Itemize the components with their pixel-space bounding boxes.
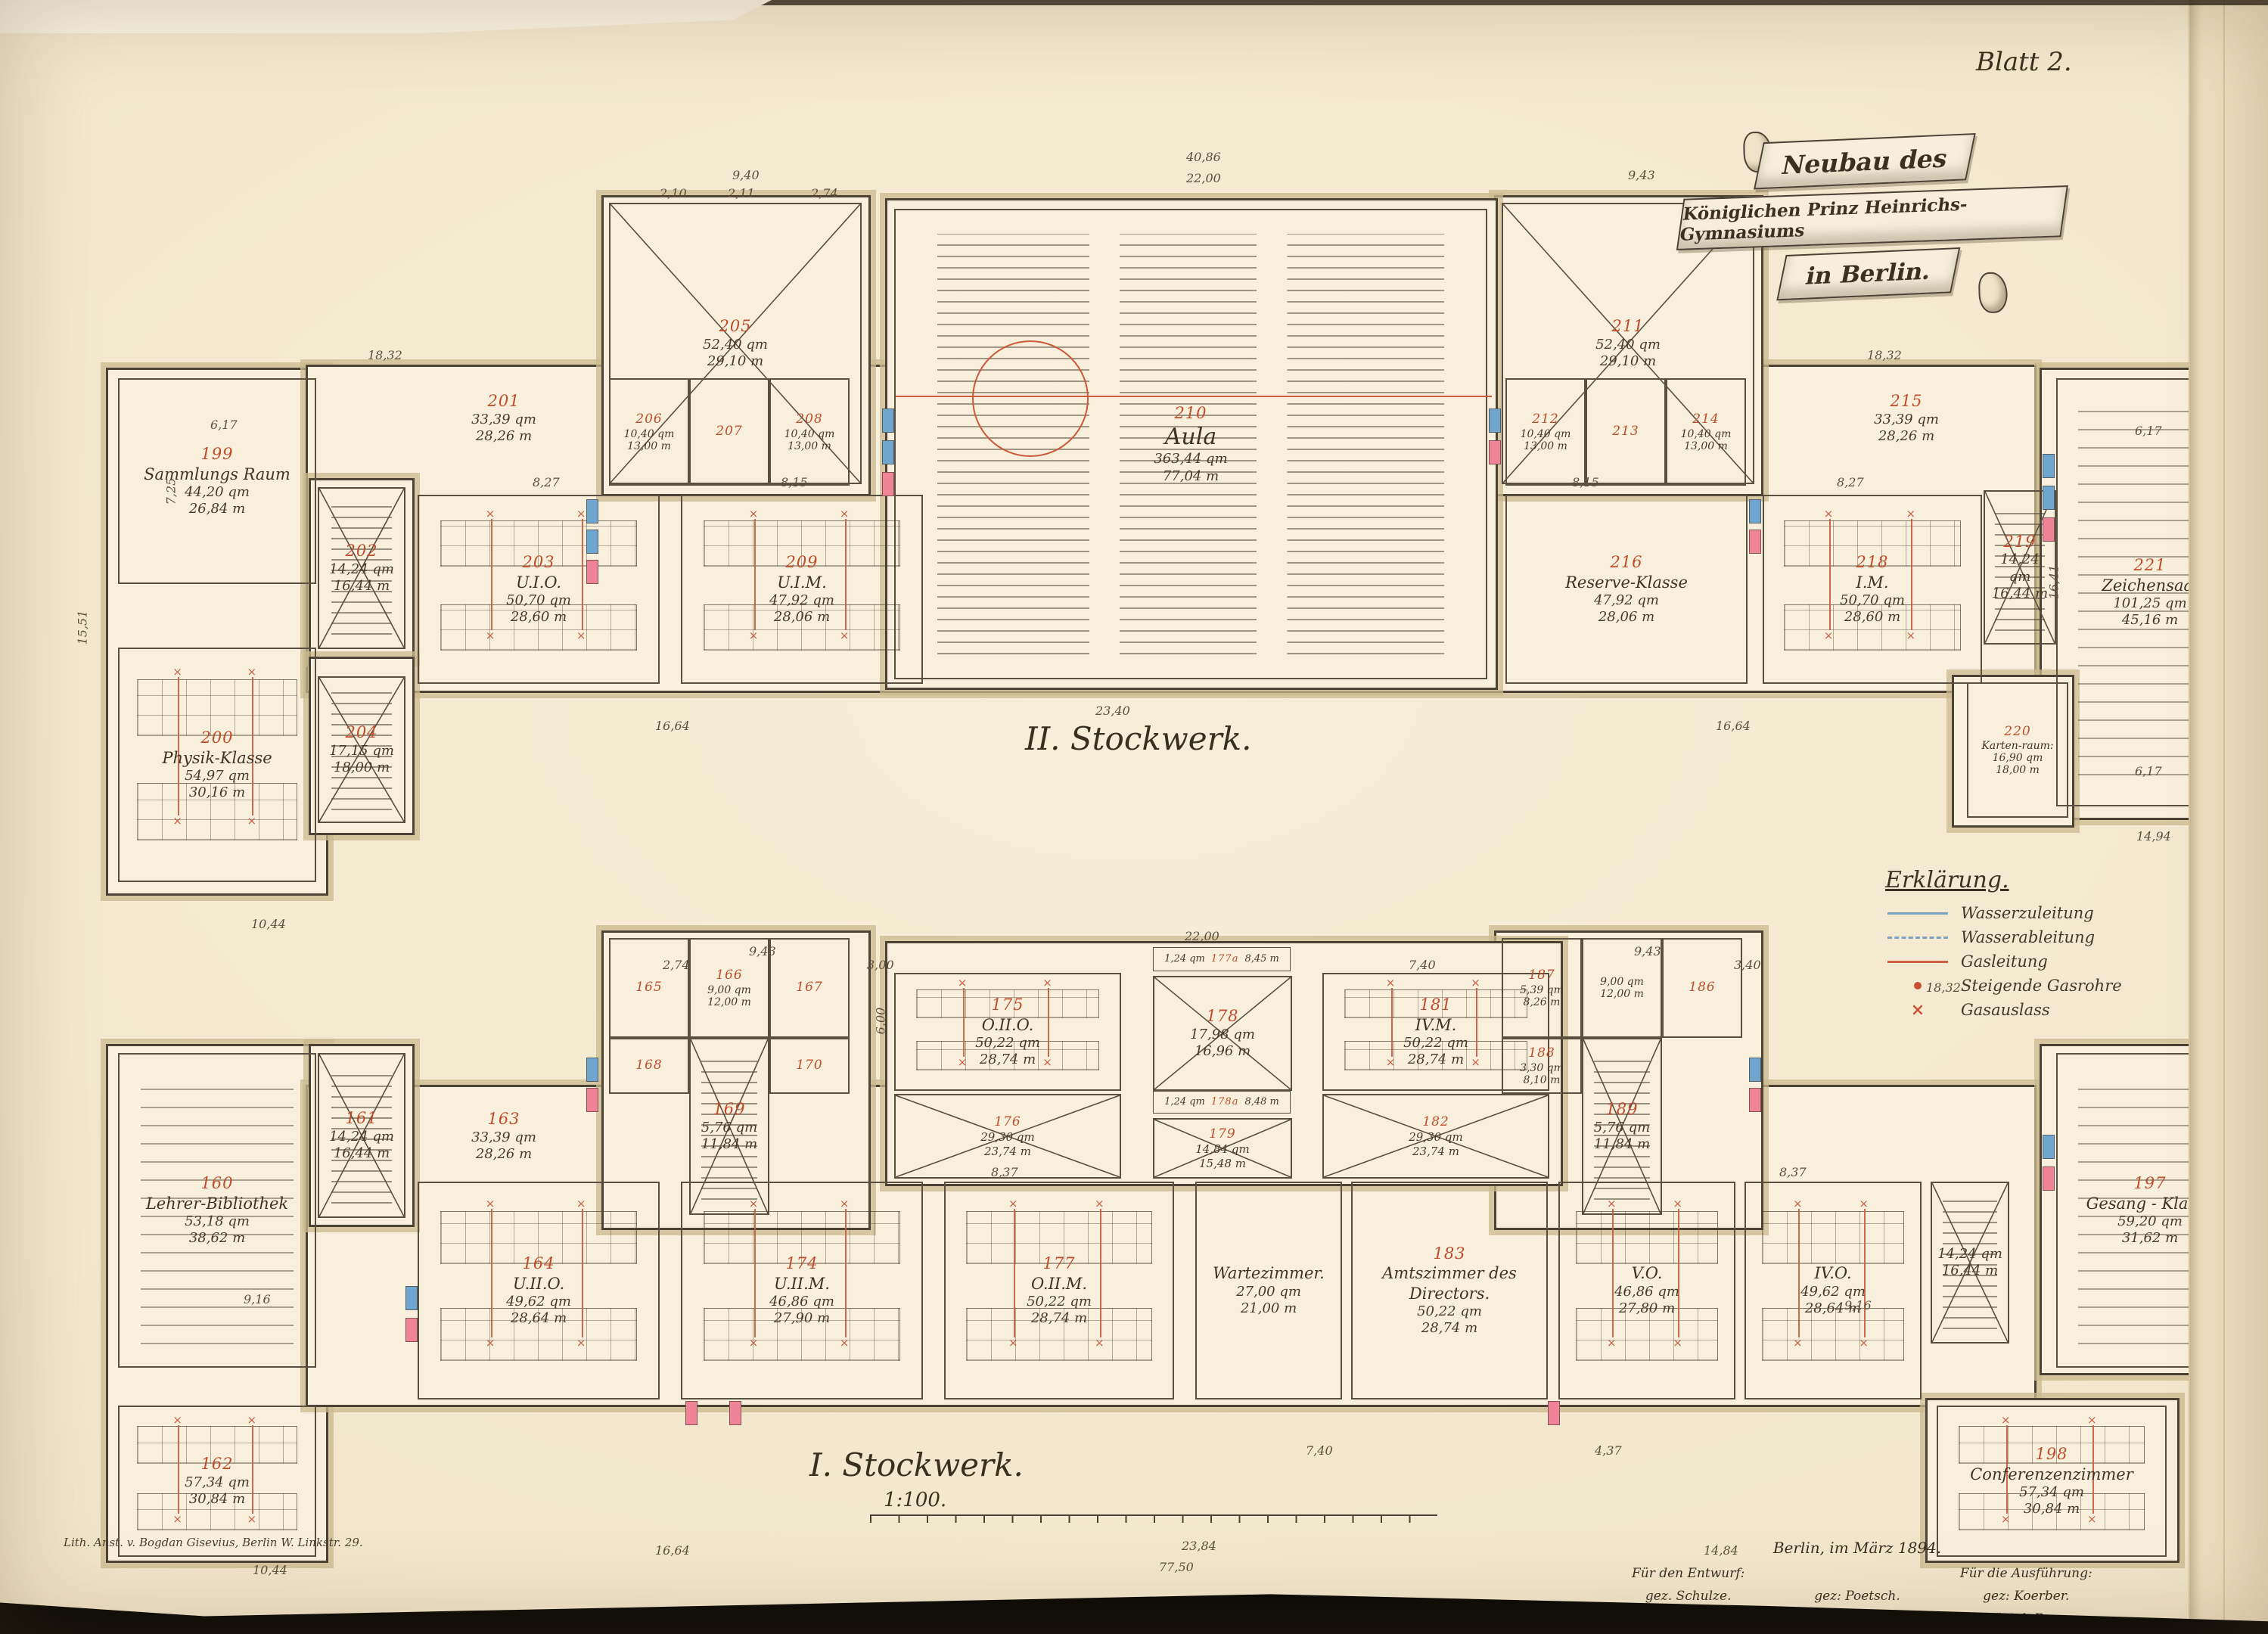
room-number: 188 xyxy=(1520,1045,1564,1061)
credit-heading xyxy=(1776,1563,1937,1586)
room: 14,24 qm16,44 m xyxy=(1931,1182,2009,1344)
room: 165 xyxy=(609,938,689,1038)
room-label: 181IV.M.50,22 qm28,74 m xyxy=(1400,993,1471,1070)
door-mark xyxy=(2043,1166,2055,1191)
room-label: 17817,98 qm16,96 m xyxy=(1187,1005,1258,1061)
legend-item-gas-outlet: ×Gasauslass xyxy=(1885,998,2211,1022)
credit-heading: Für den Entwurf: xyxy=(1608,1563,1769,1586)
room-perimeter: 28,74 m xyxy=(1403,1052,1468,1069)
room-number: 168 xyxy=(635,1058,662,1073)
room: 16257,34 qm30,84 m xyxy=(118,1406,316,1557)
room-perimeter: 12,00 m xyxy=(707,996,751,1008)
room-name: U.II.O. xyxy=(506,1274,571,1294)
room-number: 187 xyxy=(1520,968,1564,983)
room-area: 46,86 qm xyxy=(1614,1284,1679,1301)
water-supply-line-symbol xyxy=(1885,912,1950,915)
window-mark xyxy=(2043,454,2055,478)
room-number: 170 xyxy=(796,1058,822,1073)
room-perimeter: 23,74 m xyxy=(1409,1145,1463,1159)
room-label: 174U.II.M.46,86 qm27,90 m xyxy=(766,1252,837,1329)
room-label: 14,24 qm16,44 m xyxy=(1934,1244,2005,1281)
room-label: 186 xyxy=(1685,978,1718,997)
room-area: 50,22 qm xyxy=(1403,1035,1468,1052)
room-number: 198 xyxy=(1970,1444,2133,1464)
room-perimeter: 11,84 m xyxy=(1594,1136,1650,1154)
window-mark xyxy=(1489,408,1501,433)
room-label: 1,24 qm177a8,45 m xyxy=(1161,952,1282,967)
room-number: 186 xyxy=(1689,980,1715,996)
room-name: Wartezimmer. xyxy=(1213,1263,1325,1283)
room: 18229,30 qm23,74 m xyxy=(1322,1094,1549,1179)
room-area: 50,22 qm xyxy=(1356,1303,1543,1321)
room-label: 167 xyxy=(793,978,825,997)
room-label: 18229,30 qm23,74 m xyxy=(1406,1113,1466,1160)
room-label: 183Amtszimmer des Directors.50,22 qm28,7… xyxy=(1353,1242,1546,1339)
room-perimeter: 28,74 m xyxy=(1356,1320,1543,1337)
dimension-label: 9,16 xyxy=(1844,1298,1872,1312)
room: 183Amtszimmer des Directors.50,22 qm28,7… xyxy=(1351,1182,1548,1399)
room-label: 198Conferenzenzimmer57,34 qm30,84 m xyxy=(1967,1443,2136,1520)
room-name: V.O. xyxy=(1614,1263,1679,1283)
water-drain-line-symbol xyxy=(1885,937,1950,939)
room-label: 177O.II.M.50,22 qm28,74 m xyxy=(1024,1252,1095,1329)
room-area: 5,76 qm xyxy=(701,1120,757,1137)
window-mark xyxy=(2043,486,2055,510)
room-area: 14,84 qm xyxy=(1195,1142,1250,1157)
room: 177O.II.M.50,22 qm28,74 m xyxy=(944,1182,1174,1399)
gas-drop-line xyxy=(1048,988,1049,1057)
gas-drop-line xyxy=(1476,988,1477,1057)
room-perimeter: 28,26 m xyxy=(471,1146,536,1163)
door-mark xyxy=(586,560,598,584)
room-number: 161 xyxy=(329,1108,394,1128)
room-perimeter: 28,74 m xyxy=(1027,1310,1092,1328)
door-mark xyxy=(586,1088,598,1112)
room-label: V.O.46,86 qm27,80 m xyxy=(1611,1262,1682,1319)
room-number: 175 xyxy=(975,995,1040,1014)
room-area: 27,00 qm xyxy=(1213,1284,1325,1301)
floor-label-second: II. Stockwerk. xyxy=(1025,720,1251,757)
room-label: 17629,30 qm23,74 m xyxy=(977,1113,1038,1160)
dimension-label: 8,37 xyxy=(991,1165,1018,1179)
room-perimeter: 23,74 m xyxy=(980,1145,1035,1159)
room-area: 53,18 qm xyxy=(146,1213,288,1231)
room-perimeter: 16,44 m xyxy=(1937,1263,2002,1280)
legend-item-rising-gas-pipe: Steigende Gasrohre xyxy=(1885,974,2211,998)
room-label: 175O.II.O.50,22 qm28,74 m xyxy=(972,993,1043,1070)
room-number: 165 xyxy=(635,980,662,996)
room-label: 16333,39 qm28,26 m xyxy=(468,1107,539,1164)
room-area: 14,24 qm xyxy=(1937,1246,2002,1263)
window-mark xyxy=(2043,1135,2055,1159)
room-perimeter: 11,84 m xyxy=(701,1136,757,1154)
floor-label-first: I. Stockwerk. xyxy=(809,1446,1024,1483)
room-name: IV.O. xyxy=(1800,1263,1866,1283)
dimension-label: 16,64 xyxy=(655,1543,690,1558)
page-crease xyxy=(2223,0,2225,1634)
credit-heading: Für die Ausführung: xyxy=(1946,1563,2107,1586)
room-label: Wartezimmer.27,00 qm21,00 m xyxy=(1210,1262,1328,1319)
gas-drop-line xyxy=(1391,988,1393,1057)
room-perimeter: 28,74 m xyxy=(975,1052,1040,1069)
gas-drop-line xyxy=(1014,1209,1015,1337)
room: 174U.II.M.46,86 qm27,90 m xyxy=(681,1182,923,1399)
legend-title: Erklärung. xyxy=(1885,867,2211,893)
legend-items: WasserzuleitungWasserableitungGasleitung… xyxy=(1885,901,2211,1022)
door-mark xyxy=(729,1401,741,1425)
room-label: 1669,00 qm12,00 m xyxy=(704,966,754,1009)
dimension-label: 23,84 xyxy=(1182,1539,1216,1553)
room-area: 5,76 qm xyxy=(1594,1120,1650,1137)
gas-drop-line xyxy=(963,988,965,1057)
dimension-label: 2,74 xyxy=(663,958,690,972)
gas-drop-line xyxy=(178,1425,179,1514)
room-area: 33,39 qm xyxy=(471,1129,536,1147)
room-label: 9,00 qm12,00 m xyxy=(1597,974,1647,1002)
room-label: 164U.II.O.49,62 qm28,64 m xyxy=(503,1252,574,1329)
room-label: 17914,84 qm15,48 m xyxy=(1192,1125,1253,1173)
room-number: 178 xyxy=(1190,1006,1255,1026)
room-number: 181 xyxy=(1403,995,1468,1014)
room-number: 167 xyxy=(796,980,822,996)
room-label: 1695,76 qm11,84 m xyxy=(698,1098,760,1154)
dimension-label: 77,50 xyxy=(1159,1560,1194,1574)
room-perimeter: 8,10 m xyxy=(1520,1074,1564,1086)
dimension-label: 6,00 xyxy=(873,1008,887,1035)
room-name: U.II.M. xyxy=(769,1274,834,1294)
date-line: Berlin, im März 1894. xyxy=(1608,1539,2107,1557)
title-banner: Neubau des Königlichen Prinz Heinrichs-G… xyxy=(1673,122,2071,322)
legend-item-water-supply-line: Wasserzuleitung xyxy=(1885,901,2211,925)
rising-gas-pipe-symbol xyxy=(1885,982,1950,989)
room: 198Conferenzenzimmer57,34 qm30,84 m xyxy=(1937,1406,2167,1557)
room-area: 50,22 qm xyxy=(1027,1294,1092,1311)
window-mark xyxy=(586,530,598,554)
room-number: 189 xyxy=(1594,1099,1650,1119)
credit-signature: gez: Koerber. xyxy=(1946,1586,2107,1608)
room: 16333,39 qm28,26 m xyxy=(412,1094,596,1179)
dimension-label: 3,40 xyxy=(1734,958,1761,972)
room: 16114,24 qm16,44 m xyxy=(318,1053,405,1218)
window-mark xyxy=(1749,1058,1761,1082)
gas-drop-line xyxy=(754,1209,756,1337)
legend-label: Wasserzuleitung xyxy=(1961,904,2094,922)
room-name: Conferenzenzimmer xyxy=(1970,1465,2133,1484)
legend-item-water-drain-line: Wasserableitung xyxy=(1885,925,2211,949)
room-number: 183 xyxy=(1356,1244,1543,1263)
legend: Erklärung. WasserzuleitungWasserableitun… xyxy=(1885,867,2211,1022)
room: 164U.II.O.49,62 qm28,64 m xyxy=(418,1182,660,1399)
dimension-label: 8,37 xyxy=(1779,1165,1807,1179)
room-perimeter: 38,62 m xyxy=(146,1230,288,1247)
room-number: 177 xyxy=(1027,1253,1092,1273)
window-mark xyxy=(1749,499,1761,523)
legend-label: Steigende Gasrohre xyxy=(1961,977,2122,995)
window-mark xyxy=(586,1058,598,1082)
title-line-1: Neubau des xyxy=(1754,133,1976,190)
gas-drop-line xyxy=(491,1209,492,1337)
room: Wartezimmer.27,00 qm21,00 m xyxy=(1195,1182,1342,1399)
room-area: 49,62 qm xyxy=(506,1294,571,1311)
room-area: 29,30 qm xyxy=(980,1130,1035,1145)
gas-outlet-symbol: × xyxy=(1885,1002,1950,1018)
room-number: 166 xyxy=(707,968,751,983)
room: 168 xyxy=(609,1038,689,1094)
room-area: 1,24 qm xyxy=(1164,953,1205,965)
room-label: 168 xyxy=(632,1056,665,1075)
room-perimeter: 8,48 m xyxy=(1244,1096,1278,1108)
room-perimeter: 16,96 m xyxy=(1190,1043,1255,1061)
photo-backdrop-top xyxy=(590,0,2268,5)
room-number: 162 xyxy=(185,1454,250,1474)
legend-label: Wasserableitung xyxy=(1961,928,2095,946)
door-mark xyxy=(2043,517,2055,542)
room-number: 178a xyxy=(1211,1096,1239,1108)
room-number: 174 xyxy=(769,1253,834,1273)
room-label: 160Lehrer-Bibliothek53,18 qm38,62 m xyxy=(143,1172,291,1249)
room-name: Lehrer-Bibliothek xyxy=(146,1194,288,1213)
room-number: 160 xyxy=(146,1173,288,1193)
door-mark xyxy=(685,1401,697,1425)
room-label: 1895,76 qm11,84 m xyxy=(1591,1098,1653,1154)
room: 1,24 qm177a8,45 m xyxy=(1153,947,1291,971)
room-area: 50,22 qm xyxy=(975,1035,1040,1052)
room-number: 177a xyxy=(1211,953,1239,965)
room: 160Lehrer-Bibliothek53,18 qm38,62 m xyxy=(118,1053,316,1368)
room-number: 163 xyxy=(471,1109,536,1129)
room: 181IV.M.50,22 qm28,74 m xyxy=(1322,973,1549,1091)
room: 1895,76 qm11,84 m xyxy=(1582,1038,1662,1215)
sheet-number: Blatt 2. xyxy=(1976,47,2072,77)
room-name: Amtszimmer des Directors. xyxy=(1356,1263,1543,1303)
room-label: 165 xyxy=(632,978,665,997)
dimension-label: 9,16 xyxy=(244,1292,271,1306)
room: 170 xyxy=(769,1038,850,1094)
room-name: O.II.O. xyxy=(975,1015,1040,1035)
room: 186 xyxy=(1662,938,1742,1038)
room-perimeter: 27,90 m xyxy=(769,1310,834,1328)
window-mark xyxy=(882,408,894,433)
door-mark xyxy=(1749,530,1761,554)
legend-label: Gasauslass xyxy=(1961,1001,2050,1019)
room-name: IV.M. xyxy=(1403,1015,1468,1035)
window-mark xyxy=(882,440,894,464)
door-mark xyxy=(1548,1401,1560,1425)
dimension-label: 3,00 xyxy=(867,958,894,972)
room-number: 164 xyxy=(506,1253,571,1273)
gas-line-symbol xyxy=(1885,961,1950,963)
room-perimeter: 27,80 m xyxy=(1614,1300,1679,1318)
room-area: 57,34 qm xyxy=(1970,1484,2133,1502)
title-line-2: Königlichen Prinz Heinrichs-Gymnasiums xyxy=(1676,185,2068,250)
door-mark xyxy=(1749,1088,1761,1112)
lithographer-credit: Lith. Anst. v. Bogdan Gisevius, Berlin W… xyxy=(64,1536,363,1549)
room-area: 17,98 qm xyxy=(1190,1027,1255,1044)
room-perimeter: 8,45 m xyxy=(1244,953,1278,965)
room-label: 16114,24 qm16,44 m xyxy=(326,1107,397,1163)
scale-label: 1:100. xyxy=(884,1489,946,1511)
room-area: 9,00 qm xyxy=(707,984,751,996)
dimension-label: 7,40 xyxy=(1409,958,1436,972)
dimension-label: 22,00 xyxy=(1185,929,1219,943)
legend-item-gas-line: Gasleitung xyxy=(1885,949,2211,974)
room-perimeter: 15,48 m xyxy=(1195,1157,1250,1171)
room-number: 179 xyxy=(1195,1126,1250,1142)
gas-drop-line xyxy=(845,1209,847,1337)
door-mark xyxy=(882,472,894,496)
room-area: 5,39 qm xyxy=(1520,984,1564,996)
room-area: 46,86 qm xyxy=(769,1294,834,1311)
room-area: 3,30 qm xyxy=(1520,1062,1564,1074)
room-perimeter: 30,84 m xyxy=(1970,1501,2133,1518)
room: IV.O.49,62 qm28,64 m xyxy=(1744,1182,1922,1399)
ribbon-scroll-icon xyxy=(1978,272,2008,313)
dimension-label: 4,37 xyxy=(1595,1443,1622,1458)
album-page-edge xyxy=(2189,0,2268,1634)
room-number: 169 xyxy=(701,1099,757,1119)
legend-label: Gasleitung xyxy=(1961,952,2048,971)
room-perimeter: 30,84 m xyxy=(185,1491,250,1508)
title-line-3: in Berlin. xyxy=(1776,247,1960,300)
room-label: 1883,30 qm8,10 m xyxy=(1517,1044,1567,1087)
room: 175O.II.O.50,22 qm28,74 m xyxy=(894,973,1121,1091)
dimension-label: 7,40 xyxy=(1306,1443,1333,1458)
gas-drop-line xyxy=(582,1209,583,1337)
window-mark xyxy=(586,499,598,523)
door-mark xyxy=(1489,440,1501,464)
credit-signature: gez: Poetsch. xyxy=(1776,1586,1937,1608)
room: 17817,98 qm16,96 m xyxy=(1153,976,1292,1091)
room-perimeter: 12,00 m xyxy=(1600,988,1644,1000)
room-label: 1875,39 qm8,26 m xyxy=(1517,966,1567,1009)
room-area: 1,24 qm xyxy=(1164,1096,1205,1108)
window-mark xyxy=(405,1286,418,1310)
photographed-plan-sheet: Blatt 2. Neubau des Königlichen Prinz He… xyxy=(0,0,2268,1634)
room: 167 xyxy=(769,938,850,1038)
dimension-label: 9,43 xyxy=(749,944,776,958)
room-number: 176 xyxy=(980,1114,1035,1130)
dimension-label: 9,43 xyxy=(1634,944,1661,958)
room-perimeter: 8,26 m xyxy=(1520,996,1564,1008)
room-area: 14,24 qm xyxy=(329,1129,394,1146)
room-perimeter: 21,00 m xyxy=(1213,1300,1325,1318)
room: V.O.46,86 qm27,80 m xyxy=(1558,1182,1735,1399)
room-area: 9,00 qm xyxy=(1600,976,1644,988)
room-label: 170 xyxy=(793,1056,825,1075)
room-number: 182 xyxy=(1409,1114,1463,1130)
room-label: 16257,34 qm30,84 m xyxy=(182,1452,253,1509)
room-perimeter: 28,64 m xyxy=(506,1310,571,1328)
room: 1,24 qm178a8,48 m xyxy=(1153,1091,1291,1114)
room-name: O.II.M. xyxy=(1027,1274,1092,1294)
room-label: 1,24 qm178a8,48 m xyxy=(1161,1095,1282,1110)
graphic-scale-bar xyxy=(870,1514,1437,1523)
dimension-label: 10,44 xyxy=(253,1563,287,1577)
room: 17914,84 qm15,48 m xyxy=(1153,1118,1292,1179)
room-area: 57,34 qm xyxy=(185,1474,250,1492)
room: 1695,76 qm11,84 m xyxy=(689,1038,769,1215)
gas-drop-line xyxy=(1100,1209,1101,1337)
room-perimeter: 16,44 m xyxy=(329,1145,394,1163)
room-area: 29,30 qm xyxy=(1409,1130,1463,1145)
door-mark xyxy=(405,1318,418,1342)
